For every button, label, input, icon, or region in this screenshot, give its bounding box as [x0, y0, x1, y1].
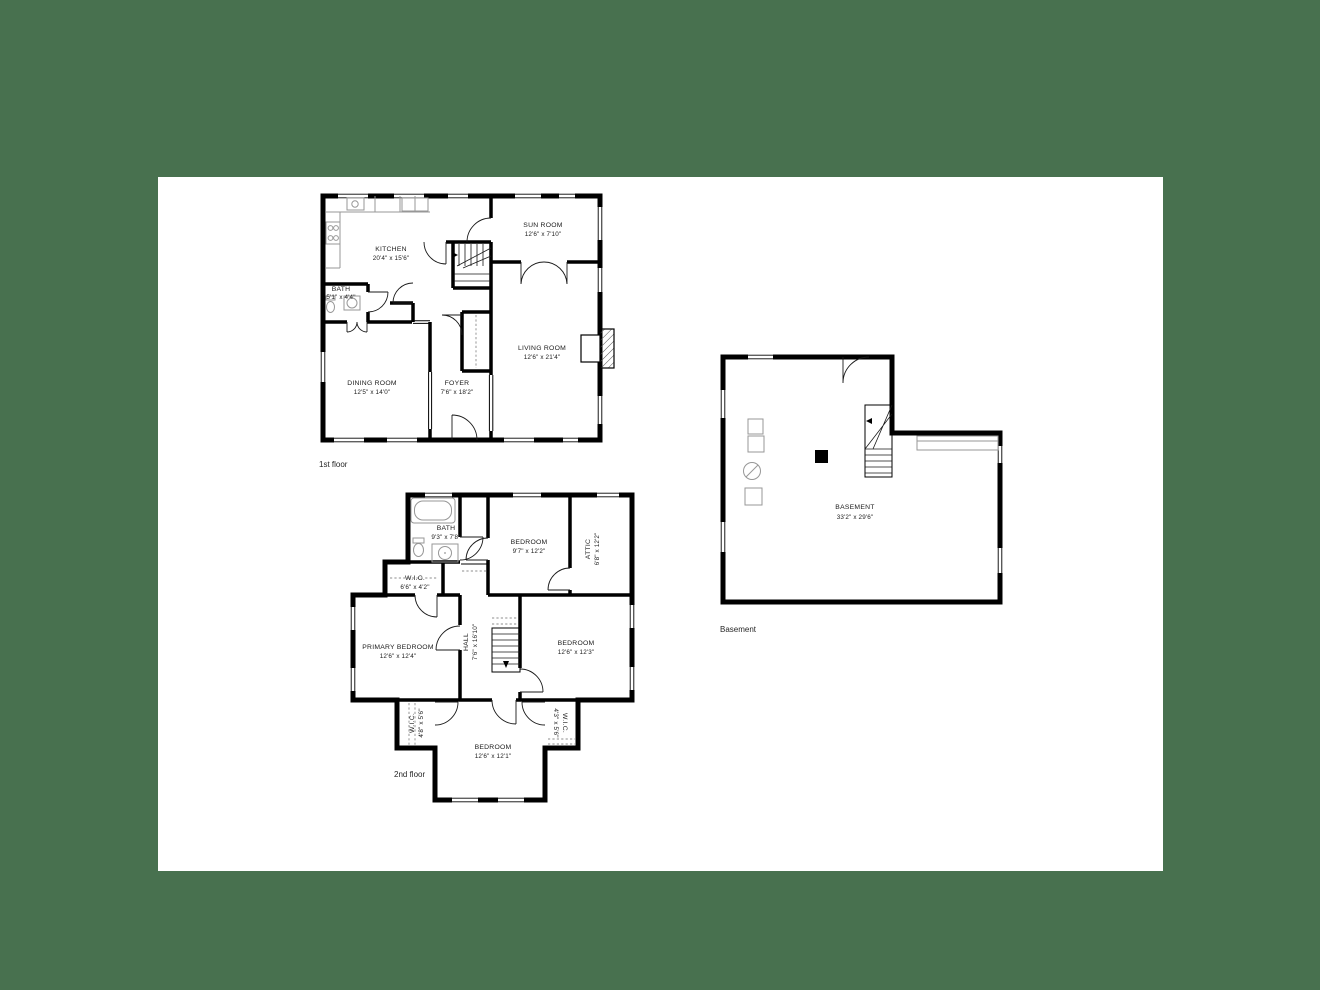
room-label-bedroom-top: BEDROOM — [511, 539, 548, 546]
room-label-wic-upper: W.I.C. — [405, 575, 425, 582]
caption-second-floor: 2nd floor — [394, 770, 425, 779]
room-dims-bedroom-top: 9'7" x 12'2" — [513, 548, 546, 555]
room-label-bath-1: BATH — [332, 286, 351, 293]
room-label-bedroom-bottom: BEDROOM — [475, 744, 512, 751]
room-label-hall: HALL — [463, 633, 470, 651]
room-dims-bedroom-bottom: 12'6" x 12'1" — [475, 753, 512, 760]
room-dims-basement: 33'2" x 29'6" — [837, 514, 874, 521]
room-label-primary-bedroom: PRIMARY BEDROOM — [362, 644, 434, 651]
room-dims-wic-right: 4'3" x 5'6" — [552, 708, 559, 737]
room-label-wic-left: W.I.C. — [409, 713, 416, 733]
room-dims-wic-left: 4'8" x 5'6" — [418, 708, 425, 737]
caption-basement: Basement — [720, 625, 757, 634]
floorplan-sheet: KITCHEN 20'4" x 15'6" SUN ROOM 12'6" x 7… — [0, 0, 1320, 990]
room-label-bath-2: BATH — [437, 525, 456, 532]
room-dims-wic-upper: 6'6" x 4'2" — [400, 584, 429, 591]
room-dims-living-room: 12'6" x 21'4" — [524, 354, 561, 361]
room-dims-attic: 6'8" x 12'2" — [594, 533, 601, 566]
first-floor-plan: KITCHEN 20'4" x 15'6" SUN ROOM 12'6" x 7… — [319, 193, 614, 470]
room-dims-bedroom-right: 12'6" x 12'3" — [558, 649, 595, 656]
room-dims-hall: 7'6" x 16'10" — [472, 624, 479, 661]
room-dims-primary-bedroom: 12'6" x 12'4" — [380, 653, 417, 660]
room-label-bedroom-right: BEDROOM — [558, 640, 595, 647]
room-dims-dining-room: 12'5" x 14'0" — [354, 389, 391, 396]
room-label-dining-room: DINING ROOM — [347, 380, 397, 387]
page-background: KITCHEN 20'4" x 15'6" SUN ROOM 12'6" x 7… — [0, 0, 1320, 990]
room-label-kitchen: KITCHEN — [375, 246, 407, 253]
room-dims-sun-room: 12'6" x 7'10" — [525, 231, 562, 238]
room-label-attic: ATTIC — [585, 539, 592, 559]
room-label-basement: BASEMENT — [835, 504, 874, 511]
room-label-sun-room: SUN ROOM — [523, 222, 562, 229]
fireplace — [581, 329, 614, 368]
support-column — [815, 450, 828, 463]
room-dims-bath-2: 9'3" x 7'8" — [431, 534, 460, 541]
room-dims-kitchen: 20'4" x 15'6" — [373, 255, 410, 262]
paper-canvas — [158, 177, 1163, 871]
caption-first-floor: 1st floor — [319, 460, 348, 469]
room-label-foyer: FOYER — [445, 380, 470, 387]
room-dims-bath-1: 5'1" x 4'4" — [326, 294, 355, 301]
room-label-living-room: LIVING ROOM — [518, 345, 566, 352]
room-label-wic-right: W.I.C. — [561, 713, 568, 733]
room-dims-foyer: 7'6" x 18'2" — [441, 389, 474, 396]
